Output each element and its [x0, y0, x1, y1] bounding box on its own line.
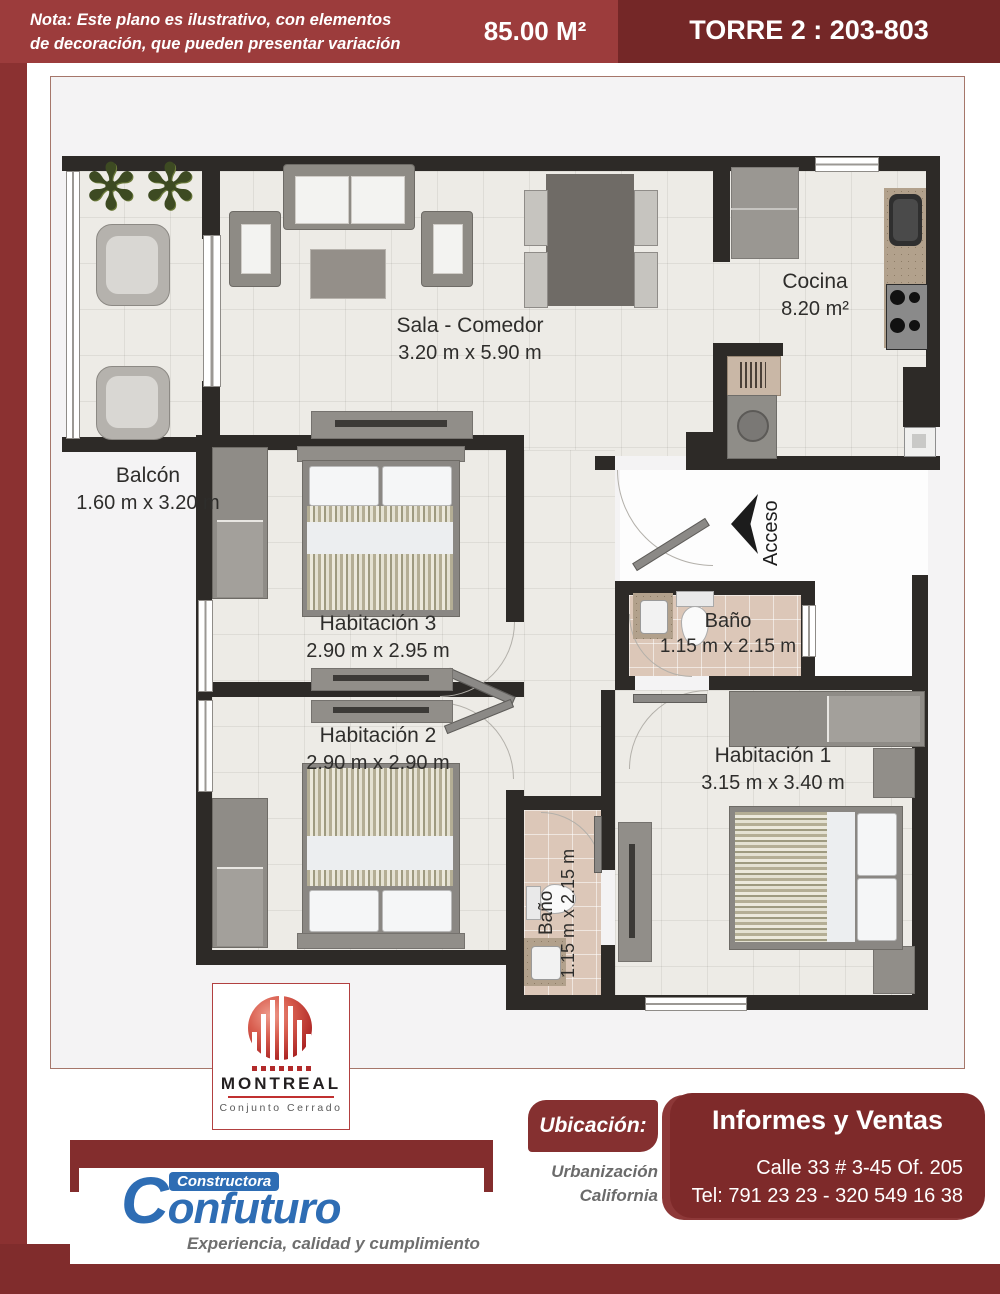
label-bano2: Baño 1.15 m x 2.15 m — [536, 838, 579, 988]
balcony-sliding-door — [203, 235, 221, 387]
montreal-square-icon — [306, 1066, 311, 1071]
bed1-duvet — [735, 812, 827, 942]
bed3-sheet — [307, 522, 453, 554]
wall-entry-stub — [595, 456, 615, 470]
confuturo-frame-left — [70, 1168, 79, 1192]
closet-section — [217, 520, 262, 597]
fridge — [731, 167, 799, 259]
bed1-window — [645, 997, 747, 1011]
wall-laundry-top — [713, 343, 783, 356]
footer-bar — [0, 1264, 1000, 1294]
label-bano1: Baño 1.15 m x 2.15 m — [648, 608, 808, 659]
closet-section — [217, 867, 262, 946]
skyline-bar-icon — [297, 1020, 302, 1060]
dining-chair — [524, 190, 548, 246]
wall-bed2-bottom — [196, 950, 524, 965]
wall-bed1-top-b — [709, 676, 928, 690]
bed1-pillow — [857, 813, 897, 876]
header-note: Nota: Este plano es ilustrativo, con ele… — [30, 9, 450, 57]
confuturo-logo: Constructora Confuturo Experiencia, cali… — [79, 1168, 484, 1263]
bed3-duvet — [307, 554, 453, 610]
bed2-window — [198, 700, 213, 792]
wall-mid-upper — [506, 450, 524, 622]
bed2-pillow — [382, 890, 452, 932]
montreal-subtitle: Conjunto Cerrado — [213, 1102, 349, 1114]
laundry-vents — [740, 362, 766, 388]
closet-bed2 — [212, 798, 268, 948]
balcony-chair-cushion — [106, 376, 158, 428]
bed1-pillow — [857, 878, 897, 941]
stove-burner — [890, 318, 905, 333]
balcony-railing — [66, 171, 80, 439]
bed2-duvet — [307, 768, 453, 836]
area-label: 85.00 M² — [455, 16, 615, 47]
wall-mid-lower — [506, 790, 524, 1010]
informes-address: Calle 33 # 3-45 Of. 205 — [756, 1157, 963, 1180]
confuturo-frame-right — [484, 1168, 493, 1192]
ubicacion-text: Urbanización California — [498, 1160, 658, 1208]
closet-section — [827, 696, 920, 741]
stove-burner — [909, 292, 920, 303]
left-accent-strip — [0, 63, 27, 1244]
bed3-window — [198, 600, 213, 692]
tv-bed1 — [629, 844, 635, 938]
wall-balcony-divider-top — [202, 171, 220, 239]
wall-bath1-left — [615, 581, 629, 690]
palm-icon: ✻ — [84, 150, 138, 225]
informes-title: Informes y Ventas — [670, 1105, 985, 1136]
bath2-door-leaf — [594, 816, 602, 873]
label-hab2: Habitación 2 2.90 m x 2.90 m — [295, 722, 461, 776]
stove-burner — [890, 290, 905, 305]
tv-living — [335, 420, 447, 427]
wall-bath2-top — [506, 796, 615, 810]
bed1-door-leaf — [633, 694, 707, 703]
skyline-bar-icon — [252, 1032, 257, 1060]
montreal-square-icon — [252, 1066, 257, 1071]
wall-entry — [686, 456, 940, 470]
montreal-name: MONTREAL — [213, 1074, 349, 1094]
skyline-bar-icon — [279, 996, 284, 1060]
nightstand-bed1 — [873, 748, 915, 798]
label-hab1: Habitación 1 3.15 m x 3.40 m — [690, 742, 856, 796]
wall-hall-right-b — [601, 945, 615, 996]
balcony-chair-cushion — [106, 236, 158, 294]
label-hab3: Habitación 3 2.90 m x 2.95 m — [295, 610, 461, 664]
montreal-square-icon — [288, 1066, 293, 1071]
bed3-pillow — [309, 466, 379, 506]
bath1-toilet-tank — [676, 591, 714, 607]
skyline-bar-icon — [261, 1014, 266, 1060]
label-cocina: Cocina 8.20 m² — [745, 268, 885, 322]
montreal-square-icon — [270, 1066, 275, 1071]
label-sala: Sala - Comedor 3.20 m x 5.90 m — [382, 312, 558, 366]
wall-kitchen-block — [903, 367, 940, 427]
bed3-pillow — [382, 466, 452, 506]
wall-kitchen-right — [926, 156, 940, 372]
flyer-page: Nota: Este plano es ilustrativo, con ele… — [0, 0, 1000, 1294]
tv-bed3 — [333, 675, 429, 681]
informes-phone: Tel: 791 23 23 - 320 549 16 38 — [692, 1185, 963, 1208]
confuturo-tagline: Experiencia, calidad y cumplimiento — [187, 1234, 480, 1254]
fridge-divider — [731, 208, 797, 210]
kitchen-sink-basin — [893, 199, 918, 241]
dining-chair — [634, 252, 658, 308]
skyline-bar-icon — [306, 1034, 311, 1060]
bed1-sheet — [827, 812, 855, 942]
armchair-cushion — [433, 224, 463, 274]
tv-bed2 — [333, 707, 429, 713]
label-balcon: Balcón 1.60 m x 3.20 m — [72, 462, 224, 516]
skyline-bar-icon — [288, 1006, 293, 1060]
skyline-bar-icon — [270, 1000, 275, 1060]
washer-drum — [737, 410, 769, 442]
wall-balcony-divider-bottom — [202, 381, 220, 437]
bed2-sheet — [307, 836, 453, 870]
montreal-square-icon — [261, 1066, 266, 1071]
confuturo-name: Confuturo — [121, 1162, 340, 1238]
wall-bed1-top-a — [615, 676, 635, 690]
dining-table — [546, 174, 634, 306]
ubicacion-badge: Ubicación: — [528, 1100, 658, 1152]
dresser-bed1 — [618, 822, 652, 962]
stove-burner — [909, 320, 920, 331]
palm-icon: ✻ — [143, 150, 197, 225]
tower-label: TORRE 2 : 203-803 — [618, 15, 1000, 46]
dining-chair — [524, 252, 548, 308]
armchair-cushion — [241, 224, 271, 274]
bed2-pillow — [309, 890, 379, 932]
kitchen-appliance-inner — [912, 434, 926, 448]
kitchen-window — [815, 157, 879, 172]
dining-chair — [634, 190, 658, 246]
note-line1: Nota: Este plano es ilustrativo, con ele… — [30, 11, 391, 29]
sofa-cushion — [351, 176, 405, 224]
montreal-square-icon — [279, 1066, 284, 1071]
wall-entry-hinge — [686, 432, 716, 456]
wall-hall-right-a — [601, 690, 615, 870]
montreal-logo: MONTREAL Conjunto Cerrado — [212, 983, 350, 1130]
note-line2: de decoración, que pueden presentar vari… — [30, 35, 400, 53]
closet-bed1 — [729, 691, 925, 747]
sofa-cushion — [295, 176, 349, 224]
wall-living-kitchen — [713, 156, 730, 262]
bed2-band — [307, 870, 453, 886]
access-label: Acceso — [760, 488, 783, 566]
nightstand-bed1 — [873, 946, 915, 994]
montreal-underline — [228, 1096, 334, 1098]
bed2-footboard — [297, 933, 465, 949]
informes-box: Informes y Ventas Calle 33 # 3-45 Of. 20… — [670, 1093, 985, 1218]
montreal-square-icon — [297, 1066, 302, 1071]
bed3-band — [307, 506, 453, 522]
coffee-table — [310, 249, 386, 299]
